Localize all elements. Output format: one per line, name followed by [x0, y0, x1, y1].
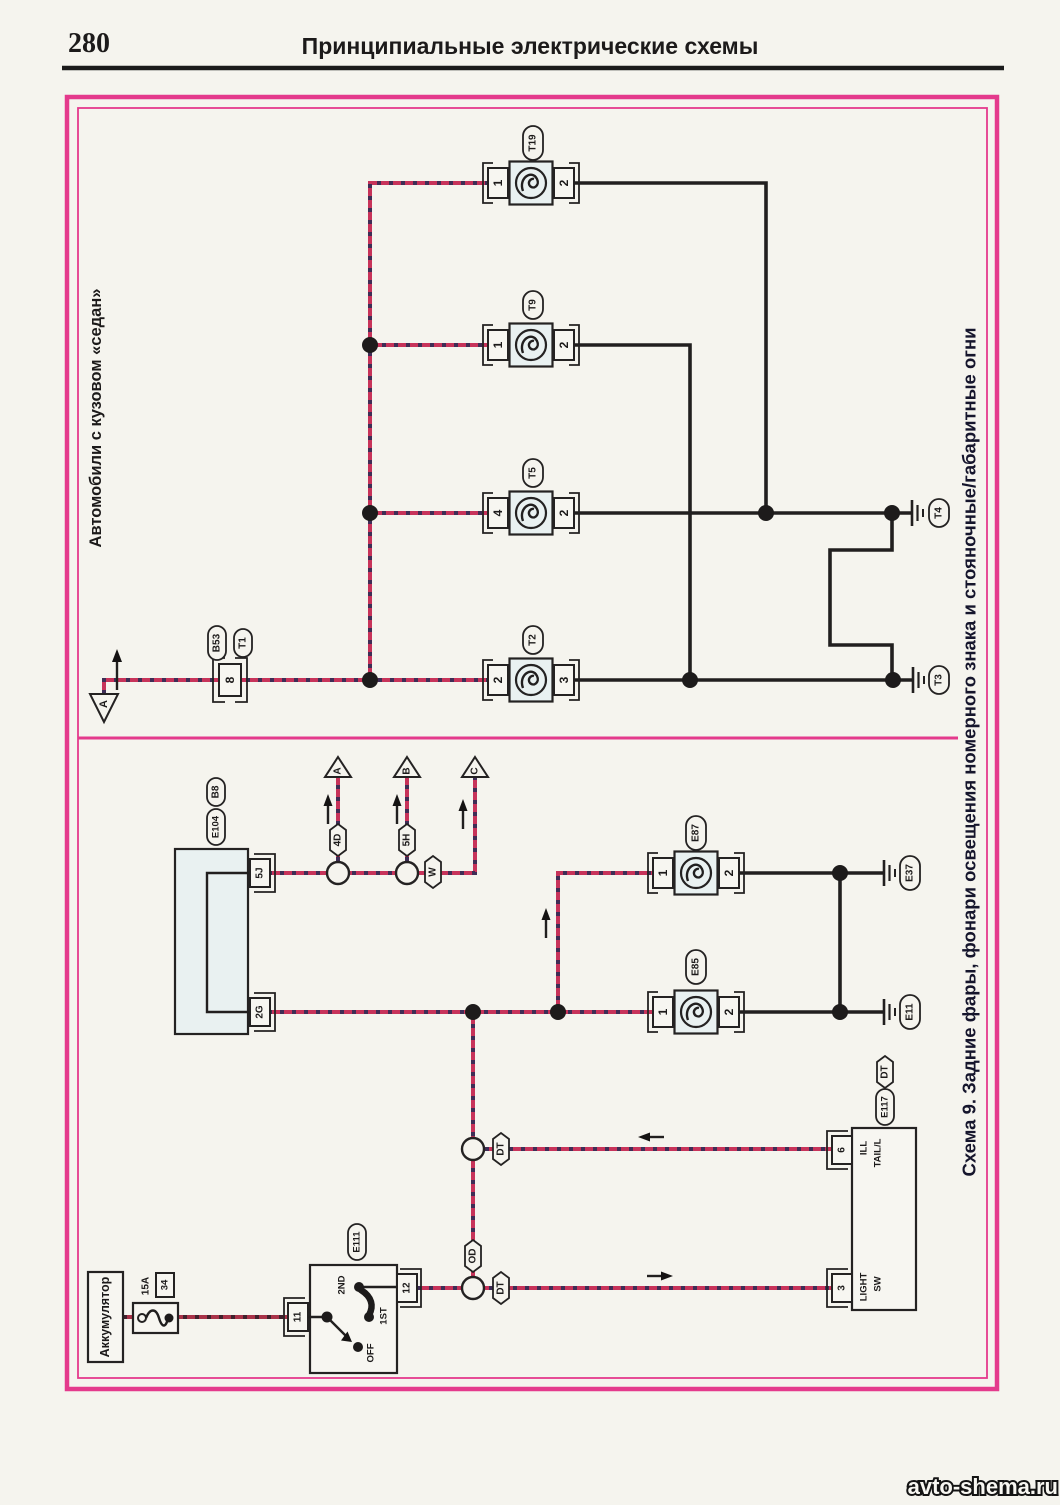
- connector-id: T1: [238, 637, 249, 649]
- pin-number: 2: [557, 341, 571, 348]
- pin-number: 2: [722, 1008, 736, 1015]
- junction: [362, 505, 378, 521]
- lamp-id: T19: [528, 134, 539, 152]
- pin-number: 11: [293, 1311, 304, 1322]
- block-pin-label: SW: [873, 1276, 884, 1291]
- pin-number: 2: [557, 179, 571, 186]
- block-id: E117: [880, 1096, 891, 1118]
- bulb-icon: [681, 858, 711, 888]
- triangle-label: A: [98, 700, 110, 708]
- fuse-rating: 15A: [141, 1277, 152, 1295]
- junction: [832, 1004, 848, 1020]
- wire-t19-ground: [574, 183, 766, 513]
- block-pin-label: TAIL/L: [873, 1138, 884, 1167]
- wire-code: DT: [496, 1281, 507, 1294]
- ground-id: E37: [905, 864, 916, 882]
- block-e104: 5J 2G B8 E104: [175, 778, 275, 1034]
- pin-number: 12: [402, 1282, 413, 1294]
- block-id: E104: [211, 815, 222, 838]
- ground-e11: E11: [884, 995, 920, 1029]
- bulb-icon: [516, 498, 546, 528]
- lamp-t5: 4 2 T5: [483, 459, 579, 535]
- battery: Аккумулятор: [88, 1272, 123, 1362]
- up-arrow-icon: [324, 794, 333, 806]
- wire-code: OD: [468, 1249, 479, 1264]
- lamp-e85: 1 2 E85: [648, 950, 744, 1034]
- pin-number: 2: [722, 869, 736, 876]
- light-switch-e111: 12 11 2ND 1ST OFF E111: [284, 1224, 421, 1373]
- hex-5h: 5H: [399, 824, 415, 856]
- fuse-terminal: [138, 1314, 146, 1322]
- left-arrow-icon: [638, 1133, 650, 1142]
- position-label: 2ND: [337, 1275, 348, 1294]
- junction: [758, 505, 774, 521]
- fuse-terminal: [165, 1314, 174, 1323]
- pin-number: 2: [491, 676, 505, 683]
- right-arrow-icon: [661, 1272, 673, 1281]
- connector-id: B53: [212, 633, 223, 652]
- lamp-id: T5: [528, 467, 539, 479]
- wire-bus-red: [370, 183, 488, 680]
- page-number: 280: [68, 28, 110, 59]
- page-title: Принципиальные электрические схемы: [302, 33, 759, 59]
- lamp-id: E87: [691, 824, 702, 842]
- junction: [550, 1004, 566, 1020]
- wire-code: W: [428, 867, 439, 877]
- pin-number: 8: [223, 676, 237, 683]
- block-id: B8: [211, 785, 222, 798]
- ground-id: T3: [934, 674, 945, 686]
- block-pin-label: LIGHT: [859, 1273, 870, 1302]
- scheme-title: Схема 9. Задние фары, фонари освещения н…: [959, 327, 980, 1176]
- pin-number: 1: [491, 341, 505, 348]
- junction: [465, 1004, 481, 1020]
- position-label: OFF: [366, 1343, 377, 1362]
- wire-ground-jog: [830, 513, 892, 680]
- pin-number: 1: [491, 179, 505, 186]
- scanned-manual-page: 280 Принципиальные электрические схемы А…: [0, 0, 1060, 1500]
- inline-connector-circle: [396, 862, 418, 884]
- wire-feed-red: [104, 680, 488, 694]
- block-body: [175, 849, 248, 1034]
- top-section-wires: [104, 183, 913, 694]
- wire-5j: [268, 777, 475, 873]
- battery-label: Аккумулятор: [98, 1276, 112, 1357]
- wire-e87-hatch: [558, 873, 653, 1012]
- hex-dt-lower: DT: [493, 1272, 509, 1304]
- wire-branches: [338, 777, 407, 873]
- up-arrow-icon: [112, 649, 122, 662]
- connector-b53: 8 B53 T1: [208, 626, 252, 702]
- junction: [682, 672, 698, 688]
- junction: [832, 865, 848, 881]
- ground-e37: E37: [884, 856, 920, 890]
- wire-5j-hatch: [268, 777, 475, 873]
- up-arrow-icon: [459, 799, 468, 811]
- switch-id: E111: [352, 1231, 363, 1253]
- bulb-icon: [681, 997, 711, 1027]
- hex-od: OD: [465, 1240, 481, 1272]
- pin-number: 6: [837, 1147, 848, 1153]
- lamp-id: E85: [691, 958, 702, 976]
- lamp-e87: 1 2 E87: [542, 816, 745, 938]
- ground-id: E11: [905, 1003, 916, 1021]
- inline-connector-circle: [327, 862, 349, 884]
- pin-number: 5J: [255, 867, 266, 878]
- position-label: 1ST: [379, 1307, 390, 1325]
- watermark: avto-shema.ru: [908, 1474, 1058, 1499]
- lamp-t9: 1 2 T9: [483, 291, 579, 367]
- fuse-number: 34: [160, 1279, 171, 1290]
- wire-code: 4D: [333, 834, 344, 847]
- pin-number: 1: [656, 1008, 670, 1015]
- page-header: 280 Принципиальные электрические схемы: [62, 28, 1004, 68]
- wire-feed-hatch: [104, 680, 488, 694]
- triangle-label: B: [402, 767, 413, 774]
- bulb-icon: [516, 168, 546, 198]
- pin-number: 2G: [255, 1005, 266, 1019]
- wire-code: DT: [496, 1142, 507, 1155]
- junction: [362, 337, 378, 353]
- junction: [362, 672, 378, 688]
- triangle-label: C: [470, 767, 481, 774]
- pin-number: 2: [557, 509, 571, 516]
- triangle-label: A: [333, 767, 344, 774]
- bulb-icon: [516, 665, 546, 695]
- up-arrow-icon: [542, 908, 551, 920]
- block-pin-label: ILL: [859, 1141, 870, 1155]
- wire-code: 5H: [402, 834, 413, 847]
- wire-code: DT: [880, 1065, 891, 1078]
- up-arrow-icon: [393, 794, 402, 806]
- wire-e87: [558, 873, 653, 1012]
- hex-4d: 4D: [330, 824, 346, 856]
- hex-dt-upper: DT: [493, 1133, 509, 1165]
- hex-w: W: [425, 856, 441, 888]
- inline-connector-circle: [462, 1277, 484, 1299]
- lamp-t2: 2 3 T2: [483, 626, 579, 702]
- block-e117: 6 3 ILL TAIL/L LIGHT SW E117: [827, 1089, 916, 1310]
- wire-branches-hatch: [338, 777, 407, 873]
- lamp-t19: 1 2 T19: [483, 126, 579, 205]
- bulb-icon: [516, 330, 546, 360]
- wire-bus-hatch: [370, 183, 488, 680]
- junction: [884, 505, 900, 521]
- ground-id: T4: [934, 507, 945, 519]
- pin-number: 3: [557, 676, 571, 683]
- wiring-diagram: 280 Принципиальные электрические схемы А…: [0, 0, 1060, 1500]
- lamp-id: T2: [528, 634, 539, 646]
- pin-number: 4: [491, 509, 505, 516]
- ground-t4: T4: [912, 499, 949, 527]
- switch-contact: [353, 1342, 363, 1352]
- pin-number: 1: [656, 869, 670, 876]
- sedan-caption: Автомобили с кузовом «седан»: [87, 289, 105, 548]
- fuse: 15A 34: [133, 1273, 178, 1333]
- lamp-id: T9: [528, 299, 539, 311]
- ground-t3: T3: [913, 666, 949, 694]
- inline-connector-circle: [462, 1138, 484, 1160]
- pin-number: 3: [837, 1285, 848, 1291]
- junction: [885, 672, 901, 688]
- hex-dt-block: DT: [877, 1056, 893, 1088]
